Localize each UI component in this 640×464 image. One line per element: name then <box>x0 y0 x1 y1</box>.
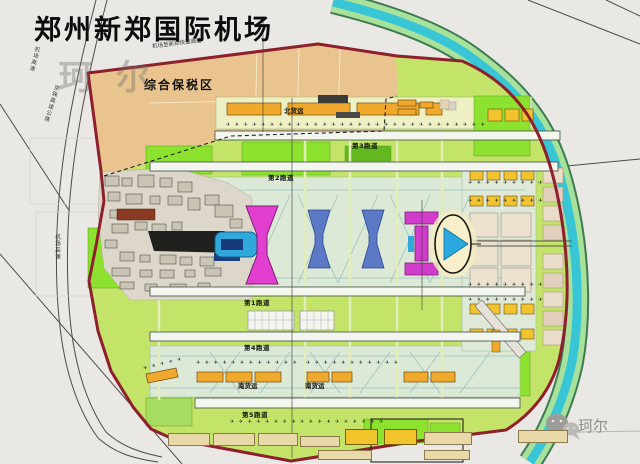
aircraft-icons-row-east-3: ✈ ✈ ✈ ✈ ✈ ✈ ✈ ✈ ✈ <box>468 283 544 288</box>
runway-1-label: 第1跑道 <box>244 297 270 307</box>
aircraft-icons-row-bottom-2: ✈ ✈ ✈ ✈ ✈ ✈ ✈ ✈ ✈ ✈ <box>300 420 385 425</box>
watermark-center: 珂尔 <box>58 50 174 99</box>
legend-box <box>258 433 298 446</box>
runway-3-strip <box>215 131 560 140</box>
road-label-airport-expressway-w: 机场高速 <box>53 234 61 260</box>
north-cargo-label: 北货运 <box>284 105 304 115</box>
legend-box <box>518 430 568 443</box>
runway-2-strip <box>150 162 558 171</box>
legend-box-highlight <box>345 429 378 445</box>
legend-box <box>318 450 372 460</box>
legend-box-highlight <box>384 429 417 445</box>
runway-3-label: 第3跑道 <box>352 140 378 150</box>
runway-2-label: 第2跑道 <box>268 172 294 182</box>
watermark-corner: 珂尔 <box>578 415 608 436</box>
midfield-stand-grids <box>248 311 334 330</box>
runway-5-strip <box>195 398 520 408</box>
runway-4-strip <box>150 332 520 341</box>
east-boundary-parcels <box>543 168 563 345</box>
legend-box <box>424 432 472 445</box>
south-cargo-label-2: 南货运 <box>305 380 325 390</box>
page-title: 郑州新郑国际机场 <box>34 8 274 47</box>
legend-box <box>300 436 340 447</box>
aircraft-icons-row-south-2: ✈ ✈ ✈ ✈ ✈ ✈ ✈ ✈ ✈ ✈ ✈ <box>306 361 399 366</box>
runway-4-label: 第4跑道 <box>244 342 270 352</box>
aircraft-icons-row-north: ✈ ✈ ✈ ✈ ✈ ✈ ✈ ✈ ✈ ✈ ✈ ✈ ✈ ✈ ✈ ✈ ✈ ✈ ✈ ✈ … <box>226 123 486 128</box>
aircraft-icons-row-east-2: ✈ ✈ ✈ ✈ ✈ ✈ ✈ ✈ ✈ <box>468 199 544 204</box>
old-terminal-building <box>117 209 155 220</box>
aircraft-icons-row-bottom-1: ✈ ✈ ✈ ✈ ✈ ✈ ✈ ✈ <box>230 420 297 425</box>
aircraft-icons-row-east-4: ✈ ✈ ✈ ✈ ✈ ✈ ✈ ✈ ✈ <box>468 298 544 303</box>
runway-1-strip <box>150 287 525 296</box>
runway-5-label: 第5跑道 <box>242 409 268 419</box>
airport-master-plan-map: 郑州新郑国际机场 珂尔 珂尔 综合保税区 第1跑道 第2跑道 第3跑道 第4跑道… <box>0 0 640 464</box>
legend-box <box>213 433 255 446</box>
legend-box <box>168 433 210 446</box>
south-cargo-label-1: 南货运 <box>238 380 258 390</box>
legend-box <box>424 450 470 460</box>
aircraft-icons-row-east-1: ✈ ✈ ✈ ✈ ✈ ✈ ✈ ✈ ✈ <box>468 181 544 186</box>
aircraft-icons-row-south-1: ✈ ✈ ✈ ✈ ✈ ✈ ✈ ✈ ✈ ✈ ✈ ✈ <box>196 361 298 366</box>
